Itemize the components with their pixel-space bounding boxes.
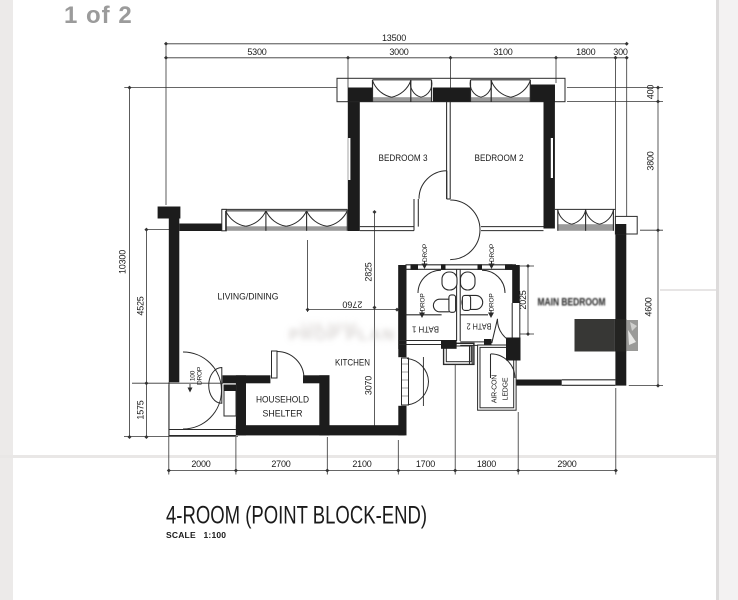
svg-text:10300: 10300 xyxy=(118,250,128,274)
svg-text:1800: 1800 xyxy=(477,459,496,469)
svg-text:1575: 1575 xyxy=(136,400,146,419)
svg-text:138 0000: 138 0000 xyxy=(300,320,358,334)
svg-text:13500: 13500 xyxy=(382,33,406,43)
svg-text:300: 300 xyxy=(613,47,628,57)
svg-text:SHELTER: SHELTER xyxy=(263,409,303,420)
svg-text:3100: 3100 xyxy=(493,47,512,57)
svg-text:100: 100 xyxy=(190,370,197,381)
svg-text:1800: 1800 xyxy=(576,47,595,57)
svg-text:BATH 2: BATH 2 xyxy=(466,322,491,331)
svg-text:4600: 4600 xyxy=(644,297,654,316)
svg-text:2825: 2825 xyxy=(364,262,374,281)
svg-text:2100: 2100 xyxy=(352,459,371,469)
svg-text:BEDROOM 3: BEDROOM 3 xyxy=(379,153,428,164)
svg-text:4525: 4525 xyxy=(136,296,146,315)
svg-text:400: 400 xyxy=(646,85,656,100)
svg-text:5300: 5300 xyxy=(247,47,266,57)
svg-text:SCALE 1:100: SCALE 1:100 xyxy=(166,530,226,540)
svg-text:2700: 2700 xyxy=(271,459,290,469)
svg-text:HOUSEHOLD: HOUSEHOLD xyxy=(256,395,309,406)
svg-text:DROP: DROP xyxy=(422,244,429,262)
svg-text:DROP: DROP xyxy=(420,294,427,312)
svg-text:DROP: DROP xyxy=(489,244,496,262)
svg-text:MAIN BEDROOM: MAIN BEDROOM xyxy=(538,297,606,309)
svg-text:2900: 2900 xyxy=(557,459,576,469)
svg-text:AIR-CON: AIR-CON xyxy=(492,375,499,403)
svg-text:BATH 1: BATH 1 xyxy=(411,325,439,334)
svg-text:3800: 3800 xyxy=(646,151,656,170)
svg-text:3070: 3070 xyxy=(364,376,374,395)
svg-text:2760: 2760 xyxy=(342,300,362,310)
svg-text:BEDROOM 2: BEDROOM 2 xyxy=(475,153,524,164)
svg-text:LIVING/DINING: LIVING/DINING xyxy=(218,292,279,302)
svg-text:3000: 3000 xyxy=(389,47,408,57)
svg-text:DROP: DROP xyxy=(197,367,204,385)
svg-text:DROP: DROP xyxy=(489,294,496,312)
svg-text:1700: 1700 xyxy=(416,459,435,469)
svg-text:4-ROOM (POINT BLOCK-END): 4-ROOM (POINT BLOCK-END) xyxy=(166,502,427,530)
svg-text:LEDGE: LEDGE xyxy=(503,377,510,400)
svg-text:2000: 2000 xyxy=(191,459,210,469)
svg-text:KITCHEN: KITCHEN xyxy=(335,358,370,368)
